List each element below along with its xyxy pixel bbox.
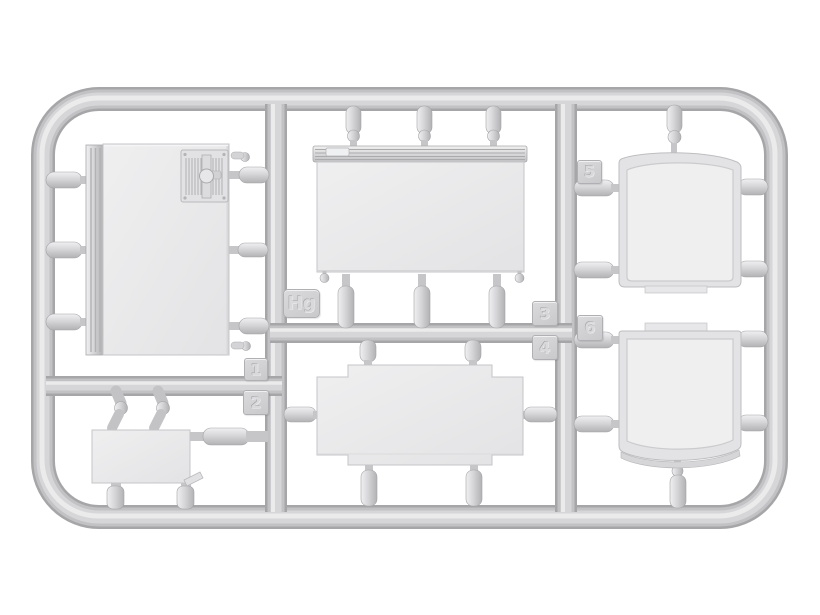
part-tag-3: 3 xyxy=(532,301,558,326)
caster-wheel-right xyxy=(515,274,524,283)
runner-horizontal-middle xyxy=(270,330,572,333)
part-tag-6: 6 xyxy=(577,315,603,341)
sprue-photo: Hg 1 2 3 4 5 6 xyxy=(0,0,820,615)
part-3-box-panel xyxy=(313,146,527,283)
runner-vertical-left xyxy=(273,104,276,512)
hatch-face xyxy=(92,430,190,483)
part-tag-1: 1 xyxy=(244,358,268,381)
caster-wheel-left xyxy=(320,274,329,283)
part-tag-5: 5 xyxy=(577,160,602,184)
gates-box-panel-to-middle-runner xyxy=(338,274,505,328)
part-5-side-panel-upper xyxy=(619,153,741,293)
panel-inner-field xyxy=(627,163,733,281)
sprue-render xyxy=(0,0,820,615)
sprue-id-tag: Hg xyxy=(283,289,320,318)
runner-vertical-right xyxy=(563,104,566,512)
panel-inner-field xyxy=(627,339,733,449)
part-2-hatch-panel xyxy=(92,430,203,486)
part-tag-4: 4 xyxy=(532,335,558,360)
vent-grille xyxy=(181,150,228,202)
panel-bottom-tab xyxy=(645,286,707,293)
gates-floor-panel-to-bottom-frame xyxy=(361,462,482,506)
gates-top-frame-to-box-panel xyxy=(346,106,501,148)
gates-door-to-left-runner xyxy=(229,152,269,351)
part-4-floor-panel xyxy=(317,365,523,465)
gates-middle-runner-to-floor-panel xyxy=(360,340,481,367)
part-tag-2: 2 xyxy=(243,390,269,415)
rail-latch-plate xyxy=(326,148,349,156)
grille-handle-knob xyxy=(200,169,214,183)
box-panel-face xyxy=(317,162,524,272)
part-6-side-panel-lower xyxy=(619,323,741,468)
part-1-door-panel xyxy=(86,144,229,355)
runner-horizontal-lower-left xyxy=(46,383,282,386)
